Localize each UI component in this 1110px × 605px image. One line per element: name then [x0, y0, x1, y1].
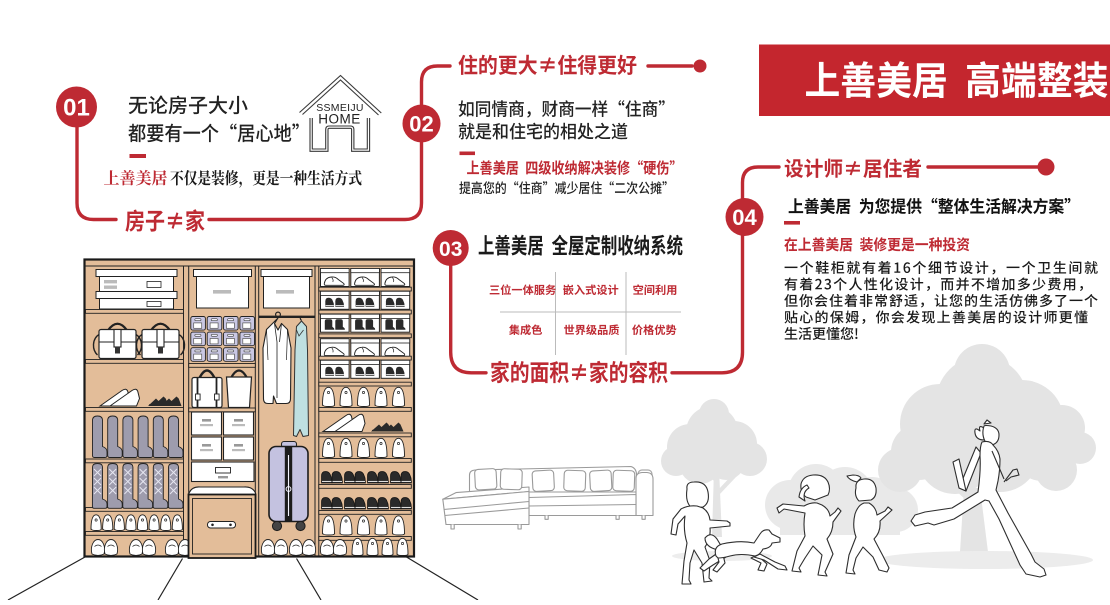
- svg-text:03: 03: [439, 238, 462, 261]
- svg-text:04: 04: [732, 205, 757, 230]
- svg-text:01: 01: [63, 95, 90, 122]
- svg-text:HOME: HOME: [318, 112, 361, 127]
- svg-text:02: 02: [409, 112, 433, 137]
